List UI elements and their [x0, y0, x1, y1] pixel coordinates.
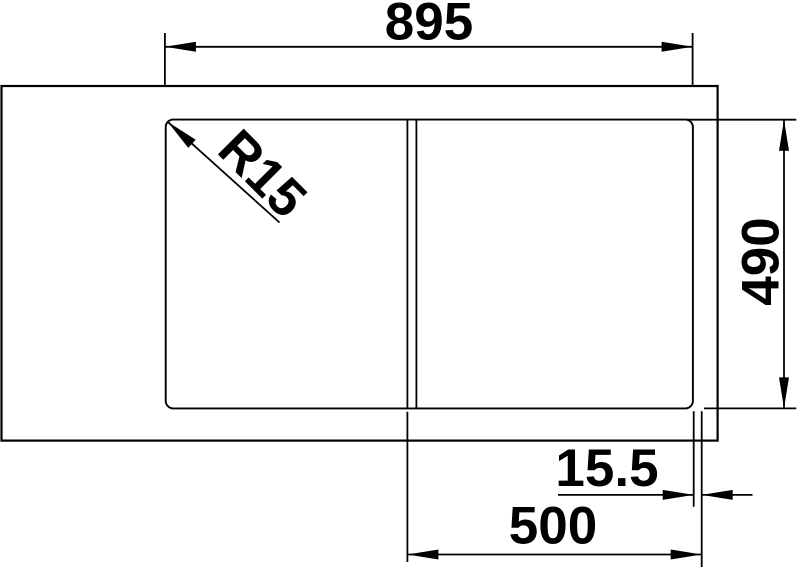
svg-text:490: 490 — [732, 217, 791, 305]
svg-text:15.5: 15.5 — [555, 439, 658, 498]
svg-text:500: 500 — [509, 497, 597, 556]
svg-text:895: 895 — [385, 0, 473, 52]
